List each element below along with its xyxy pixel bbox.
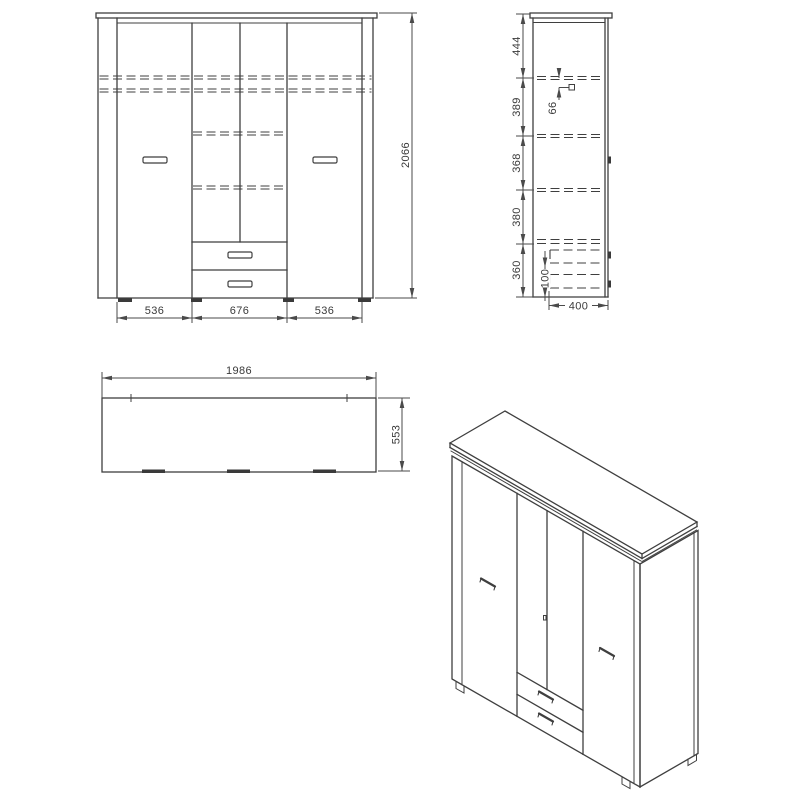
iso-drawer-handle-1 [538, 692, 553, 704]
dim-label-s3: 368 [511, 153, 523, 173]
front-drawers [192, 242, 287, 287]
dim-label-s1: 444 [511, 36, 523, 56]
right-door-handle [313, 157, 337, 163]
side-carcass-outline [533, 18, 608, 297]
technical-drawing-page: 2066 536 676 536 [0, 0, 800, 800]
dim-label-s4: 380 [511, 207, 523, 227]
iso-drawers [517, 672, 583, 732]
drawer-handle-1 [228, 252, 252, 258]
dim-label-width1986: 1986 [226, 365, 252, 377]
front-hidden-shelves [100, 76, 372, 189]
wardrobe-drawing: 2066 536 676 536 [0, 0, 800, 800]
side-hidden-drawers [550, 250, 604, 288]
front-height-dimension: 2066 [375, 13, 417, 298]
dim-label-depth400: 400 [569, 301, 589, 313]
iso-left-door-handle [480, 579, 495, 591]
iso-right-door-handle [599, 648, 614, 660]
top-depth-dimension: 553 [378, 398, 410, 471]
side-view: 66 444 389 368 380 360 100 [511, 13, 612, 313]
iso-drawer-handle-2 [538, 714, 553, 726]
front-cornice [96, 13, 377, 18]
isometric-view [450, 411, 698, 789]
dim-label-plinth: 100 [540, 269, 552, 289]
side-depth-dimension: 400 [549, 291, 608, 313]
left-door-handle [143, 157, 167, 163]
side-cornice [530, 13, 612, 18]
top-view: 1986 553 [102, 365, 410, 473]
top-width-dimension: 1986 [102, 365, 376, 398]
front-feet [118, 299, 371, 303]
iso-top-slab [450, 411, 697, 562]
drawer-handle-2 [228, 281, 252, 287]
dim-label-rail: 66 [547, 101, 559, 114]
side-height-chain: 444 389 368 380 360 [511, 14, 534, 297]
dim-label-height: 2066 [400, 142, 412, 168]
iso-body [452, 456, 698, 787]
dim-label-s2: 389 [511, 97, 523, 117]
rail-section [569, 85, 575, 91]
iso-key [544, 616, 547, 621]
side-rail-dimension: 66 [547, 69, 575, 115]
top-outline [102, 398, 376, 472]
dim-label-s5: 360 [511, 260, 523, 280]
dim-label-center: 676 [230, 305, 250, 317]
dim-label-depth553: 553 [391, 425, 403, 445]
dim-label-right: 536 [315, 305, 335, 317]
dim-label-left: 536 [145, 305, 165, 317]
iso-feet [456, 682, 697, 789]
front-view: 2066 536 676 536 [96, 13, 417, 323]
front-width-dimensions: 536 676 536 [117, 302, 362, 323]
